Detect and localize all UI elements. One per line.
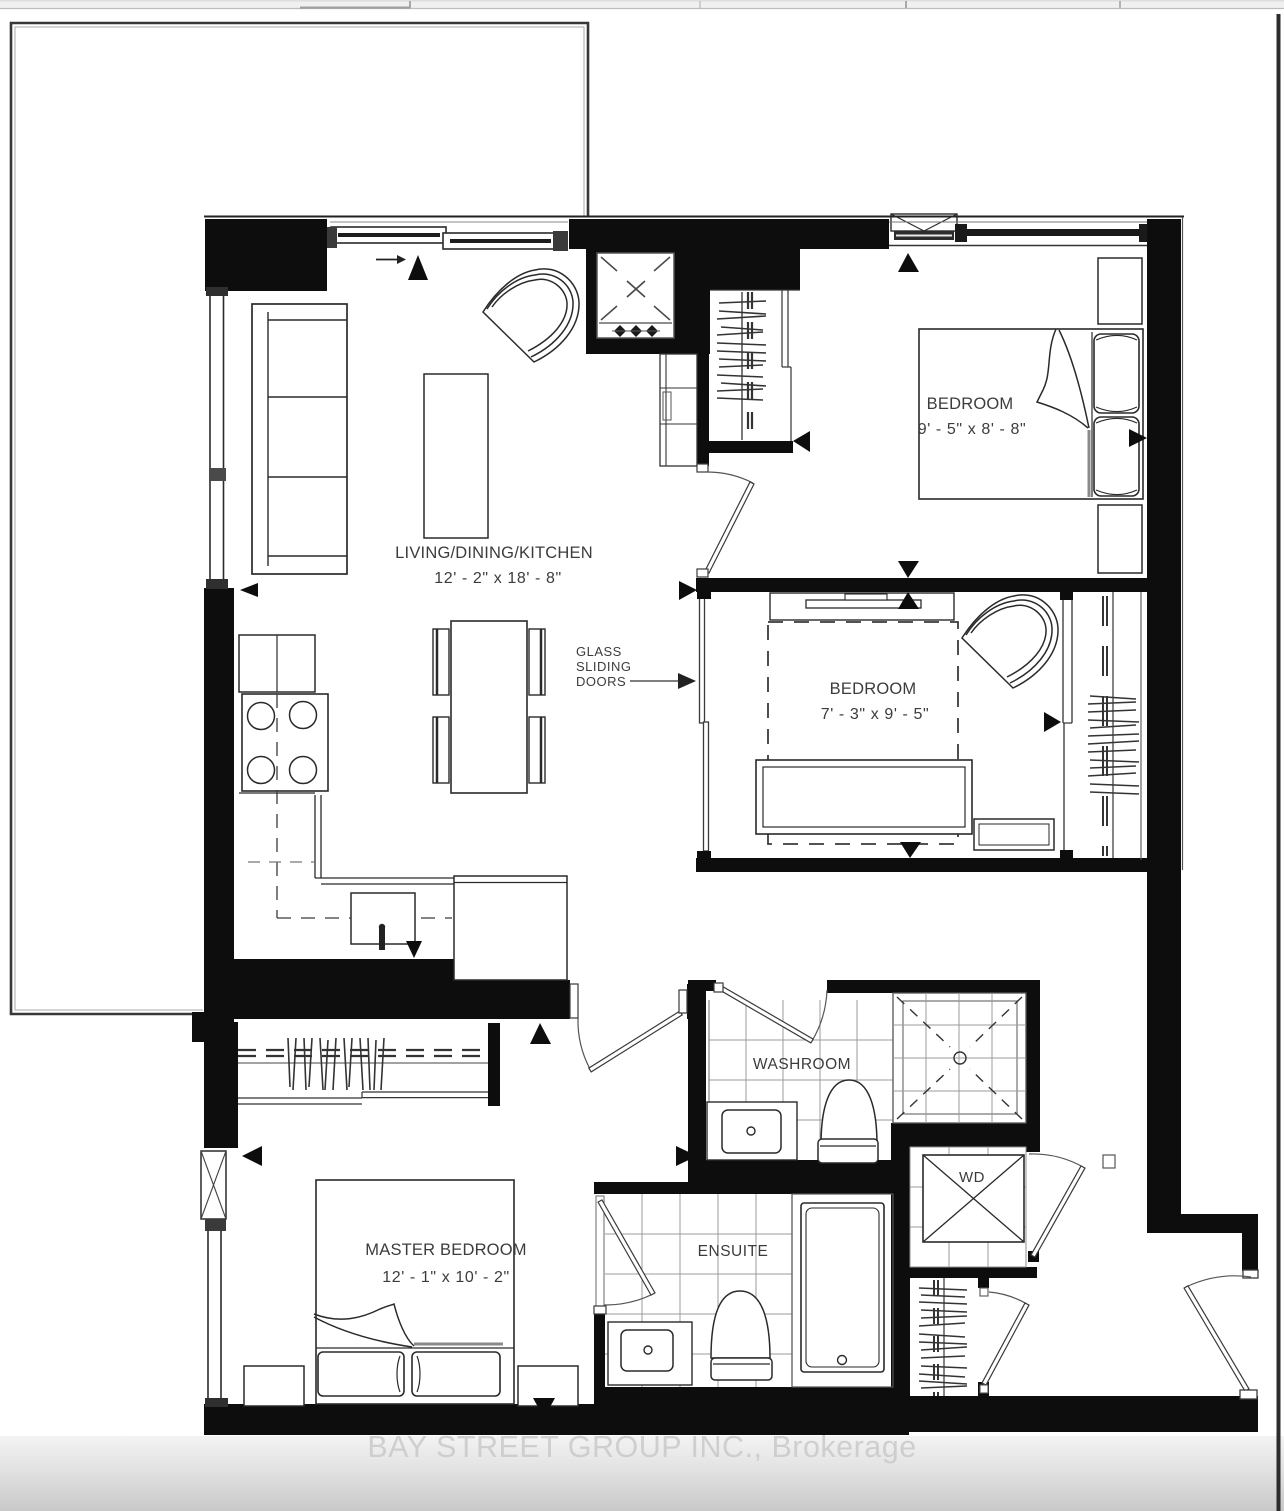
svg-text:GLASS: GLASS bbox=[576, 644, 622, 659]
svg-text:BEDROOM: BEDROOM bbox=[927, 395, 1014, 413]
svg-text:SLIDING: SLIDING bbox=[576, 659, 632, 674]
svg-text:BAY STREET GROUP INC., Brokera: BAY STREET GROUP INC., Brokerage bbox=[367, 1430, 916, 1464]
svg-text:9' - 5" x 8' - 8": 9' - 5" x 8' - 8" bbox=[918, 421, 1027, 438]
svg-text:LIVING/DINING/KITCHEN: LIVING/DINING/KITCHEN bbox=[395, 544, 593, 562]
svg-text:BEDROOM: BEDROOM bbox=[830, 680, 917, 698]
svg-text:ENSUITE: ENSUITE bbox=[698, 1243, 769, 1260]
svg-text:12' - 2" x 18' - 8": 12' - 2" x 18' - 8" bbox=[434, 570, 562, 587]
svg-text:MASTER BEDROOM: MASTER BEDROOM bbox=[365, 1241, 526, 1259]
svg-text:DOORS: DOORS bbox=[576, 674, 626, 689]
svg-text:WD: WD bbox=[959, 1169, 985, 1186]
svg-text:7' - 3" x 9' - 5": 7' - 3" x 9' - 5" bbox=[821, 706, 930, 723]
svg-text:WASHROOM: WASHROOM bbox=[753, 1056, 851, 1073]
svg-text:12' - 1" x 10' - 2": 12' - 1" x 10' - 2" bbox=[382, 1269, 510, 1286]
